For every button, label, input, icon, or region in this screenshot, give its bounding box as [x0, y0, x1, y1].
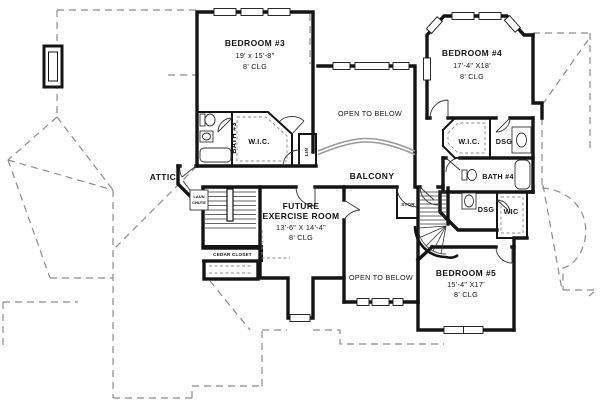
cedar-closet-label: CEDAR CLOSET [213, 252, 252, 257]
toilet-tank [200, 114, 205, 126]
bay-window [504, 16, 520, 33]
bath4-label: BATH #4 [482, 172, 514, 181]
open-below-upper-label: OPEN TO BELOW [338, 109, 402, 118]
window [241, 9, 263, 16]
toilet-bowl [205, 114, 215, 126]
roof-ridge [57, 117, 113, 190]
window [333, 63, 350, 70]
window [214, 9, 236, 16]
roof-line [313, 330, 444, 344]
attic-label: ATTIC [150, 172, 176, 182]
dsg-upper-label: DSG [496, 137, 513, 146]
sink [517, 133, 527, 147]
bedroom5-clg: 8' CLG [454, 290, 478, 299]
stair-balustrade [415, 226, 458, 258]
toilet-bowl [468, 170, 477, 181]
window [452, 13, 474, 20]
wic-bedroom3-label: W.I.C. [248, 137, 269, 146]
chimney-top-left [44, 46, 62, 87]
exercise-clg: 8' CLG [289, 233, 313, 242]
sink [465, 195, 474, 207]
window [393, 63, 409, 70]
exercise-label-1: FUTURE [283, 201, 320, 211]
dsg-upper-door [496, 118, 510, 132]
roof-line [563, 290, 596, 296]
bedroom5-label: BEDROOM #5 [436, 268, 496, 278]
roof-line [8, 160, 50, 278]
dsg-lower-label: DSG [478, 205, 495, 214]
roof-valley [540, 40, 588, 108]
linen-label: LIN [304, 148, 309, 156]
bedroom3-clg: 8' CLG [243, 62, 267, 71]
bay-window [426, 17, 442, 34]
bathtub [200, 148, 231, 162]
storage-label: STOR [401, 202, 415, 207]
laundry-chute-label-2: CHUTE [192, 200, 206, 205]
balcony-arch [318, 139, 415, 155]
roof-line [192, 386, 262, 398]
balcony-label: BALCONY [350, 171, 395, 181]
bath3-label: BATH #3 [229, 122, 238, 154]
window [393, 299, 403, 306]
bathtub [515, 160, 530, 189]
window [290, 315, 310, 322]
bath4-door [446, 158, 460, 172]
roof-line [8, 117, 57, 160]
window [355, 63, 389, 70]
window [479, 13, 501, 20]
chimney-bottom [204, 261, 258, 279]
roof-valley [543, 185, 562, 290]
second-floor-plan: BEDROOM #3 19' x 15'-8" 8' CLG BEDROOM #… [0, 0, 600, 409]
toilet-tank [462, 170, 467, 180]
bedroom4-label: BEDROOM #4 [442, 48, 502, 58]
exercise-dims: 13'-6" X 14'-4" [276, 223, 326, 232]
roof-ridge [8, 160, 113, 190]
roof-valley [210, 281, 250, 330]
window [268, 9, 290, 16]
laundry-chute-label-1: LAUN [193, 194, 204, 199]
wic-bedroom4-label: W.I.C. [458, 137, 479, 146]
window [424, 58, 431, 80]
bedroom4-dims: 17'-4" X18' [453, 61, 491, 70]
floor-plan-canvas: BEDROOM #3 19' x 15'-8" 8' CLG BEDROOM #… [0, 0, 600, 409]
bedroom5-door [496, 247, 512, 263]
roof-curve [542, 188, 586, 290]
bedroom4-door [430, 100, 448, 118]
main-staircase [205, 189, 256, 228]
sink [203, 133, 211, 140]
landing-door [344, 200, 360, 220]
window [372, 299, 389, 306]
window [357, 299, 369, 306]
wic-bedroom5-label: WIC [504, 207, 519, 216]
exercise-label-2: EXERCISE ROOM [263, 211, 340, 221]
stair-rail [227, 189, 233, 221]
bedroom3-dims: 19' x 15'-8" [236, 51, 275, 60]
open-below-lower-label: OPEN TO BELOW [349, 273, 413, 282]
bedroom5-dims: 15'-4" X17' [447, 280, 485, 289]
bedroom3-label: BEDROOM #3 [225, 38, 285, 48]
bedroom4-clg: 8' CLG [460, 72, 484, 81]
